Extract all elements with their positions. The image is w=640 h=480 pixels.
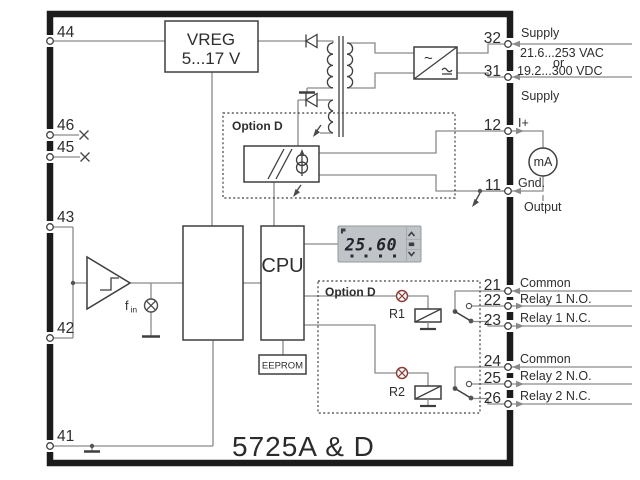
terminal-32: 32 — [484, 30, 501, 47]
terminal-43: 43 — [57, 209, 74, 226]
nc-marks — [80, 131, 90, 162]
voltage-dc-label: 19.2...300 VDC — [517, 64, 602, 78]
vreg-label: VREG — [187, 30, 235, 49]
circuit-diagram: VREG 5...17 V ~ Option D — [0, 0, 640, 480]
option-d-relay-label: Option D — [325, 285, 376, 299]
output-label: Output — [524, 200, 562, 214]
terminal-23: 23 — [484, 312, 501, 329]
relay2-contact — [453, 381, 474, 400]
ac-symbol: ~ — [424, 50, 433, 67]
relay1-common-label: Common — [520, 276, 571, 290]
wire-12-ma — [511, 131, 543, 148]
fin-indicator: f in — [125, 299, 160, 337]
isolation-arrow-isolator — [293, 185, 301, 197]
display-set-button — [409, 243, 414, 247]
terminal-12: 12 — [484, 117, 501, 134]
relay1-nc-label: Relay 1 N.C. — [520, 311, 591, 325]
supply-bottom-label: Supply — [521, 89, 560, 103]
terminal-42: 42 — [57, 320, 74, 337]
terminal-46: 46 — [57, 117, 74, 134]
relay2-nc-label: Relay 2 N.C. — [520, 389, 591, 403]
display-panel: 25.60 — [338, 226, 421, 262]
device-title: 5725A & D — [232, 431, 375, 462]
supply-labels: Supply 21.6...253 VAC or 19.2...300 VDC … — [517, 26, 604, 103]
vreg-voltage: 5...17 V — [182, 49, 241, 68]
vreg-block: VREG 5...17 V — [165, 21, 258, 72]
wire-cpu-r2 — [304, 325, 428, 386]
i-plus-label: I+ — [518, 116, 529, 130]
fin-label-base: f — [125, 299, 129, 313]
terminal-24: 24 — [484, 353, 502, 370]
eeprom-block: EEPROM — [259, 355, 306, 374]
relay2-no-label: Relay 2 N.O. — [520, 369, 592, 383]
isolation-arrows — [293, 125, 480, 207]
ma-meter: mA — [529, 148, 557, 176]
isolation-arrow-transformer — [313, 125, 321, 137]
terminal-11: 11 — [485, 177, 501, 194]
wire-diode1-transformer — [317, 41, 333, 43]
wire-isolator-11 — [319, 175, 504, 191]
relay-2: R2 — [389, 368, 473, 407]
transformer-icon — [327, 36, 352, 137]
isolated-output-block — [244, 146, 319, 182]
eeprom-label: EEPROM — [262, 361, 303, 372]
option-d-relay-section: Option D R1 R2 — [318, 281, 480, 413]
acdc-converter: ~ — [414, 47, 457, 79]
relay2-label: R2 — [389, 385, 405, 399]
supply-top-label: Supply — [521, 26, 560, 40]
x-mark-45 — [81, 153, 90, 162]
ma-meter-label: mA — [534, 155, 553, 169]
diode-1 — [306, 35, 317, 48]
display-value: 25.60 — [344, 236, 397, 255]
gnd-label: Gnd. — [518, 176, 545, 190]
fin-label-sub: in — [131, 305, 138, 315]
terminal-44: 44 — [57, 24, 75, 41]
wire-transformer-acdc — [347, 43, 414, 88]
x-mark-46 — [80, 131, 89, 140]
relay2-common-label: Common — [520, 352, 571, 366]
terminal-22: 22 — [484, 292, 501, 309]
relay1-no-label: Relay 1 N.O. — [520, 292, 592, 306]
input-block — [183, 226, 243, 340]
relay1-contact — [453, 303, 474, 323]
relay-1: R1 — [389, 291, 473, 330]
cpu-block: CPU — [261, 226, 304, 340]
wire-41 — [53, 340, 213, 446]
terminal-25: 25 — [484, 370, 501, 387]
terminal-41: 41 — [57, 428, 74, 445]
wire-winding1-ground — [307, 88, 333, 92]
diode-2 — [306, 94, 317, 107]
terminal-31: 31 — [484, 63, 501, 80]
isolation-arrow-output — [472, 193, 480, 207]
option-d-analog-label: Option D — [232, 119, 283, 133]
terminal-45: 45 — [57, 139, 74, 156]
schmitt-trigger — [87, 257, 130, 309]
wire-isolator-12 — [319, 131, 504, 153]
cpu-label: CPU — [261, 255, 303, 277]
terminal-26: 26 — [484, 390, 501, 407]
relay1-label: R1 — [389, 307, 405, 321]
